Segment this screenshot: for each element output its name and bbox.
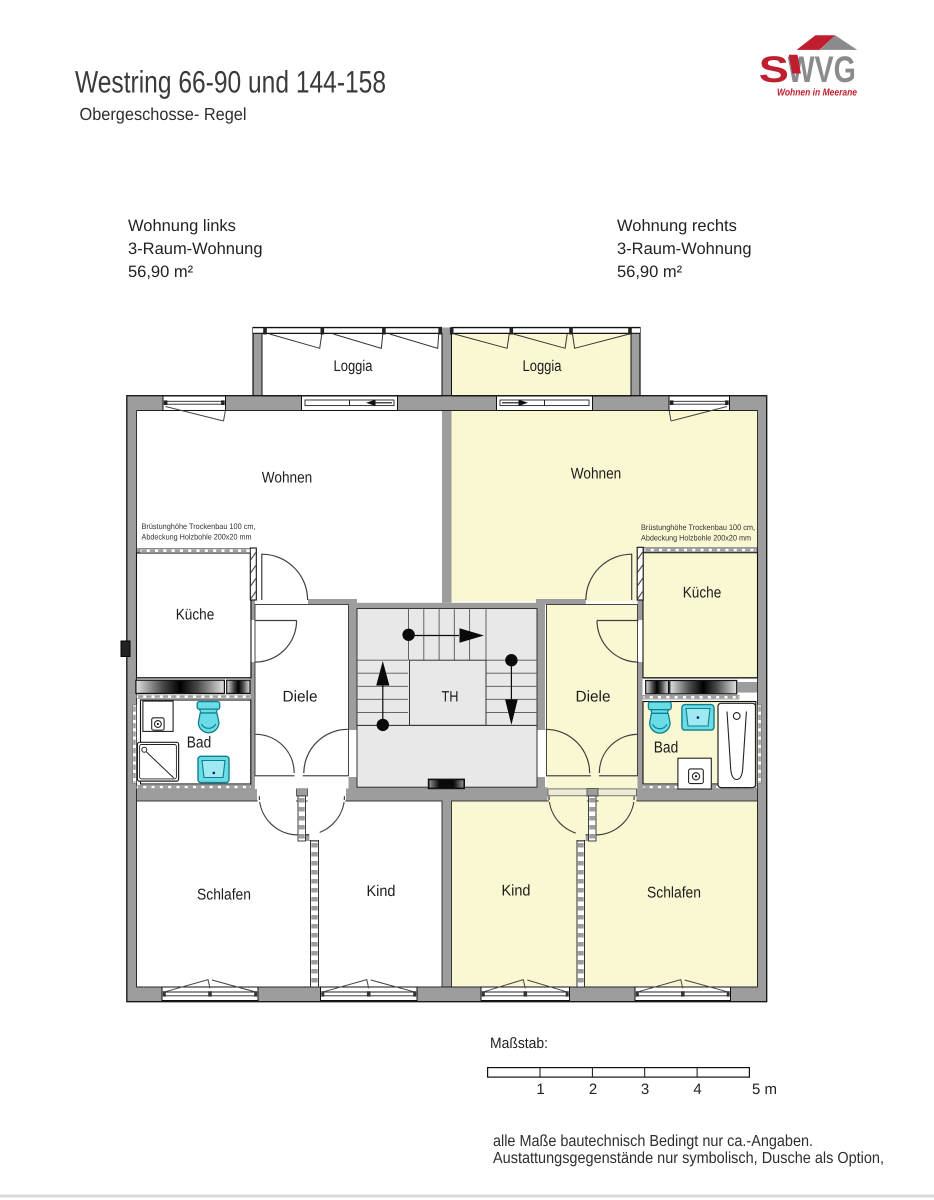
svg-text:TH: TH <box>442 689 459 706</box>
svg-text:Bad: Bad <box>654 740 679 757</box>
svg-text:Bad: Bad <box>187 735 212 752</box>
svg-text:4: 4 <box>693 1081 701 1098</box>
svg-text:1: 1 <box>536 1081 544 1098</box>
svg-text:Maßstab:: Maßstab: <box>490 1035 548 1052</box>
svg-text:Kind: Kind <box>502 883 531 900</box>
svg-text:alle Maße bautechnisch Bedingt: alle Maße bautechnisch Bedingt nur ca.-A… <box>493 1133 813 1150</box>
svg-text:S: S <box>759 49 789 90</box>
svg-text:Westring 66-90 und 144-158: Westring 66-90 und 144-158 <box>75 65 386 100</box>
svg-text:Wohnen: Wohnen <box>571 466 622 483</box>
svg-text:5 m: 5 m <box>752 1081 777 1098</box>
svg-text:Brüstunghöhe Trockenbau 100 cm: Brüstunghöhe Trockenbau 100 cm, <box>641 523 755 532</box>
svg-text:Kind: Kind <box>367 883 396 900</box>
svg-text:Schlafen: Schlafen <box>197 887 251 904</box>
svg-text:Küche: Küche <box>683 585 722 602</box>
svg-text:56,90 m²: 56,90 m² <box>617 263 683 281</box>
svg-text:Loggia: Loggia <box>523 358 562 375</box>
svg-text:Diele: Diele <box>283 689 318 706</box>
svg-text:Diele: Diele <box>576 689 611 706</box>
svg-text:Loggia: Loggia <box>334 358 373 375</box>
svg-text:Wohnen: Wohnen <box>262 470 313 487</box>
svg-text:3: 3 <box>641 1081 649 1098</box>
svg-text:3-Raum-Wohnung: 3-Raum-Wohnung <box>128 240 263 258</box>
svg-text:Küche: Küche <box>176 607 215 624</box>
svg-text:Wohnung links: Wohnung links <box>128 217 236 235</box>
svg-text:3-Raum-Wohnung: 3-Raum-Wohnung <box>617 240 752 258</box>
svg-text:2: 2 <box>589 1081 597 1098</box>
svg-text:Schlafen: Schlafen <box>647 885 701 902</box>
svg-text:Wohnen in Meerane: Wohnen in Meerane <box>777 88 857 99</box>
svg-text:56,90 m²: 56,90 m² <box>128 263 194 281</box>
svg-text:Obergeschosse- Regel: Obergeschosse- Regel <box>80 104 247 124</box>
svg-text:Abdeckung Holzbohle 200x20 mm: Abdeckung Holzbohle 200x20 mm <box>142 533 252 542</box>
svg-text:Wohnung rechts: Wohnung rechts <box>617 217 737 235</box>
svg-text:Abdeckung Holzbohle 200x20 mm: Abdeckung Holzbohle 200x20 mm <box>641 534 751 543</box>
svg-text:Brüstunghöhe Trockenbau 100 cm: Brüstunghöhe Trockenbau 100 cm, <box>142 522 256 531</box>
svg-text:Austattungsgegenstände nur sym: Austattungsgegenstände nur symbolisch, D… <box>493 1150 884 1167</box>
